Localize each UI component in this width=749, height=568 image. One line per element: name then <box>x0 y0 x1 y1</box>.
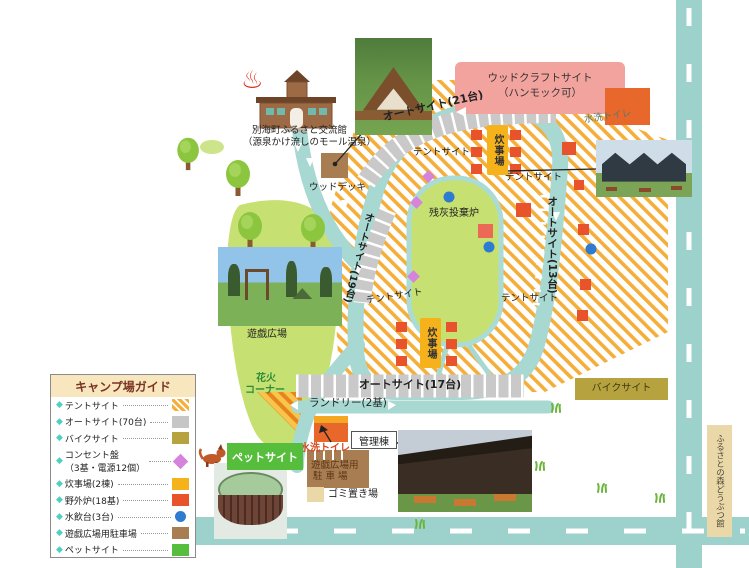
bench <box>639 188 651 193</box>
legend-leader <box>150 421 168 423</box>
tree-silhouette <box>286 261 297 297</box>
legend-bullet-icon: ◆ <box>56 512 63 522</box>
cooking-area-1: 炊事場 <box>487 125 508 175</box>
hall-label-line1: 別海町ふるさと交流館 <box>252 126 347 137</box>
furnace-icon <box>516 203 531 217</box>
outlet-swatch <box>173 453 189 469</box>
pet-site-banner: ペットサイト <box>227 443 303 470</box>
grass-patch <box>200 140 224 154</box>
pet-site-swatch <box>172 544 189 556</box>
campground-map: ♨ 別海町ふるさと交流館 （源泉かけ流しのモール温泉） ウッドデッキ ウッドクラ… <box>0 0 749 568</box>
legend-leader <box>149 460 171 462</box>
highway-vertical <box>676 0 702 568</box>
photo-pet-site <box>214 463 287 539</box>
water-icon <box>444 192 455 203</box>
legend-item-auto: ◆ オートサイト(70台) <box>51 414 195 431</box>
bench <box>494 494 515 501</box>
furnace-icon <box>580 279 591 290</box>
furnace-swatch <box>172 494 189 506</box>
legend-item-outlet: ◆ コンセント盤 （3基・電源12個） <box>51 447 195 476</box>
plaza-parking-swatch <box>172 527 189 539</box>
cooking-label-1: 炊事場 <box>490 134 505 167</box>
tent-site-label-1: テントサイト <box>413 148 470 159</box>
legend-bullet-icon: ◆ <box>56 417 63 427</box>
legend-item-bike: ◆ バイクサイト <box>51 430 195 447</box>
legend-leader <box>141 532 168 534</box>
exchange-hall-icon <box>256 70 336 132</box>
legend-item-pet: ◆ ペットサイト <box>51 542 195 559</box>
furnace-icon <box>574 180 584 190</box>
legend-item-furnace: ◆ 野外炉(18基) <box>51 492 195 509</box>
pet-site-label: ペットサイト <box>232 449 298 465</box>
legend-box: キャンプ場ガイド ◆ テントサイト ◆ オートサイト(70台) ◆ バイクサイト… <box>50 374 196 558</box>
animal-hall-strip: ふるさとの森どうぶつ館 <box>707 425 732 537</box>
tree-silhouette <box>320 267 332 297</box>
autosite-17-label: オートサイト(17台) <box>296 379 524 392</box>
bench <box>454 499 475 506</box>
woodcraft-label-line1: ウッドクラフトサイト <box>455 70 625 85</box>
tent-site-swatch <box>172 399 189 411</box>
photo-pavilion <box>596 140 692 197</box>
play-plaza-label: 遊戯広場 <box>247 329 287 341</box>
tree-silhouette <box>228 264 240 296</box>
furnace-icon <box>578 224 589 235</box>
legend-leader <box>118 516 171 518</box>
plaza-parking-label-line2: 駐 車 場 <box>313 472 348 483</box>
water-swatch <box>175 511 186 522</box>
hot-spring-icon: ♨ <box>241 66 263 95</box>
bench <box>414 496 435 503</box>
bike-site-swatch <box>172 432 189 444</box>
legend-bullet-icon: ◆ <box>56 545 63 555</box>
ash-furnace-icon <box>478 224 493 238</box>
legend-bullet-icon: ◆ <box>56 433 63 443</box>
legend-leader <box>123 437 168 439</box>
bench <box>606 187 618 192</box>
cooking-area-2: 炊事場 <box>420 318 441 368</box>
cooking-label-2: 炊事場 <box>423 327 438 360</box>
furnace-icon <box>562 142 576 155</box>
fireworks-label-line1: 花火 <box>256 373 276 385</box>
furnace-icon <box>577 310 588 321</box>
legend-item-plaza-parking: ◆ 遊戯広場用駐車場 <box>51 525 195 542</box>
garbage-label: ゴミ置き場 <box>328 489 378 501</box>
legend-bullet-icon: ◆ <box>56 495 63 505</box>
pointer-dot <box>333 162 338 167</box>
fireworks-label-line2: コーナー <box>245 385 285 397</box>
legend-leader <box>123 549 168 551</box>
admin-building-box: 管理棟 <box>351 431 397 449</box>
auto-site-swatch <box>172 416 189 428</box>
ash-furnace-label: 残灰投棄炉 <box>429 208 479 220</box>
tent-site-label-2: テントサイト <box>505 173 562 184</box>
autosite-13-label: オートサイト(13台) <box>546 196 558 306</box>
photo-playground <box>218 247 342 326</box>
legend-bullet-icon: ◆ <box>56 456 63 466</box>
legend-bullet-icon: ◆ <box>56 528 63 538</box>
pavilion-building <box>602 150 686 181</box>
laundry-label: ランドリー(2基) <box>309 397 387 409</box>
legend-leader <box>123 499 168 501</box>
legend-bullet-icon: ◆ <box>56 400 63 410</box>
toilet-bottom-label: 水洗トイレ <box>300 443 350 455</box>
bike-site-label: バイクサイト <box>575 383 668 395</box>
climbing-frame <box>245 269 268 300</box>
bench <box>671 186 683 191</box>
water-icon <box>484 242 495 253</box>
water-icon <box>586 244 597 255</box>
toilet-building-bottom-roof <box>314 416 348 423</box>
legend-leader <box>118 483 168 485</box>
legend-bullet-icon: ◆ <box>56 479 63 489</box>
hall-label-line2: （源泉かけ流しのモール温泉） <box>243 138 376 149</box>
wood-deck-label: ウッドデッキ <box>309 183 366 194</box>
legend-item-cooking: ◆ 炊事場(2棟) <box>51 476 195 493</box>
legend-item-water: ◆ 水飲台(3台) <box>51 509 195 526</box>
cooking-swatch <box>172 478 189 490</box>
photo-admin-building <box>398 430 532 512</box>
garbage-area <box>307 487 324 502</box>
legend-item-tent: ◆ テントサイト <box>51 397 195 414</box>
admin-building-label: 管理棟 <box>359 433 389 448</box>
pen-log-wall <box>218 495 282 525</box>
animal-hall-label: ふるさとの森どうぶつ館 <box>714 434 726 528</box>
toilet-building-bottom <box>314 423 348 442</box>
legend-title: キャンプ場ガイド <box>51 375 195 397</box>
legend-leader <box>123 404 168 406</box>
